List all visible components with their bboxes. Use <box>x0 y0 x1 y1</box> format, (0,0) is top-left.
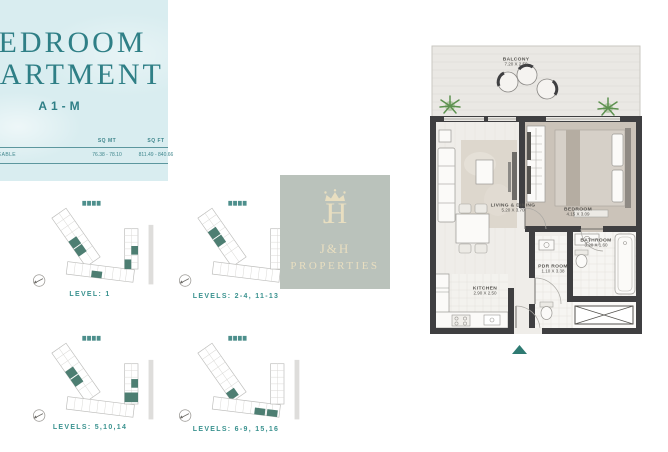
floorplan-drawing <box>428 40 644 360</box>
room-label-bathroom: BATHROOM 3.20 X 1.60 <box>580 238 611 248</box>
compass-icon <box>33 275 45 287</box>
room-label-living-dining: LIVING & DINING 5.20 X 3.70 <box>491 203 536 213</box>
title-card: BEDROOM APARTMENT A1-M SQ MT SQ FT SALEA… <box>0 0 168 181</box>
level-plan-3-label: LEVELS: 5,10,14 <box>15 424 165 431</box>
entry-marker-icon <box>512 345 527 354</box>
sofa <box>438 148 455 222</box>
brochure-page: BEDROOM APARTMENT A1-M SQ MT SQ FT SALEA… <box>0 0 668 452</box>
sqft-value: 811.49 - 840.66 <box>121 152 191 158</box>
dining-chair <box>459 244 471 253</box>
table-rule-top <box>0 147 168 148</box>
level-plan-2-label: LEVELS: 2-4, 11-13 <box>161 293 311 300</box>
level-plan-4-label: LEVELS: 6-9, 15,16 <box>161 426 311 433</box>
coffee-table <box>476 160 493 184</box>
developer-logo: JH J&H PROPERTIES <box>280 175 390 289</box>
plan-badge-icon <box>82 201 100 206</box>
dining-chair <box>459 204 471 213</box>
col-header-sqmt: SQ MT <box>87 138 127 144</box>
table-rule-bottom <box>0 163 168 164</box>
level-plan-3 <box>22 333 158 429</box>
pillow <box>612 134 623 166</box>
headboard <box>625 128 631 208</box>
stove <box>452 315 470 326</box>
plan-badge-icon <box>82 336 100 341</box>
dining-table <box>456 214 489 243</box>
compass-icon <box>33 410 45 422</box>
fridge-counter <box>435 274 449 317</box>
logo-name: J&H <box>280 241 390 257</box>
area-table: SQ MT SQ FT SALEABLE 76.38 - 78.10 811.4… <box>0 0 168 181</box>
toilet <box>576 255 587 268</box>
adjacent-building-bar <box>149 225 154 285</box>
col-header-sqft: SQ FT <box>136 138 176 144</box>
level-plan-3-drawing <box>22 333 158 429</box>
room-label-kitchen: KITCHEN 2.90 X 2.50 <box>473 286 497 296</box>
level-plan-1-drawing <box>22 198 158 294</box>
bed-throw <box>566 130 580 206</box>
tv-unit <box>512 152 517 200</box>
compass-icon <box>179 275 191 287</box>
plan-badge-icon <box>228 201 246 206</box>
room-label-bedroom: BEDROOM 4.15 X 3.09 <box>564 207 592 217</box>
entrance-opening <box>514 328 542 334</box>
level-plan-1-label: LEVEL: 1 <box>15 291 165 298</box>
dining-chair <box>475 204 487 213</box>
pdr-sink <box>539 240 554 250</box>
monogram-h: H <box>326 197 348 230</box>
adjacent-building-bar <box>149 360 154 420</box>
logo-monogram: JH <box>323 197 347 231</box>
pillow <box>612 170 623 202</box>
level-plan-1 <box>22 198 158 294</box>
level-plan-4-drawing <box>168 333 304 429</box>
floorplan: BALCONY 7.20 X 2.50 LIVING & DINING 5.20… <box>428 40 644 360</box>
side-table <box>439 130 451 142</box>
dining-chair <box>475 244 487 253</box>
adjacent-building-bar <box>295 360 300 420</box>
pdr-toilet <box>541 307 552 320</box>
room-label-pdr: PDR ROOM 1.10 X 3.38 <box>538 264 568 274</box>
compass-icon <box>179 410 191 422</box>
balcony-chair-icon <box>498 72 518 92</box>
row-label-saleable: SALEABLE <box>0 152 16 158</box>
room-label-balcony: BALCONY 7.20 X 2.50 <box>503 57 530 67</box>
level-plan-4 <box>168 333 304 429</box>
plan-badge-icon <box>228 336 246 341</box>
kitchen-sink <box>484 315 500 325</box>
logo-name-2: PROPERTIES <box>280 260 390 272</box>
